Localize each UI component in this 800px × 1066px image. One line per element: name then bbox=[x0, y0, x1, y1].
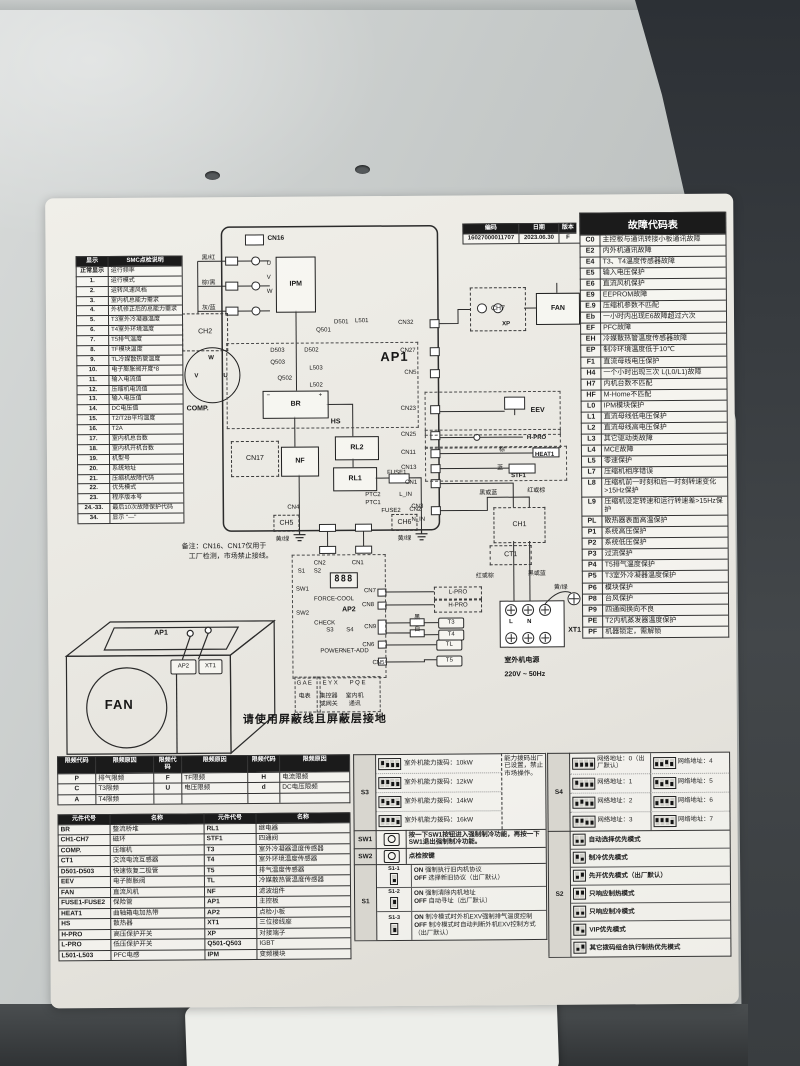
table-cell: 5. bbox=[76, 315, 108, 325]
table-cell: TL bbox=[204, 875, 256, 886]
cn23: CN23 bbox=[401, 406, 416, 412]
table-cell: COMP. bbox=[58, 845, 110, 856]
xt1-label: XT1 bbox=[568, 627, 581, 634]
table-cell bbox=[153, 793, 181, 804]
table-cell: 变频模块 bbox=[256, 948, 350, 959]
table-cell: 23. bbox=[77, 493, 109, 503]
table-cell: P4 bbox=[582, 560, 602, 571]
ptc2: PTC2 bbox=[365, 492, 380, 498]
rl2-box: RL2 bbox=[335, 436, 379, 460]
table-cell: 15. bbox=[77, 414, 109, 424]
priority-mode-text: 其它拨码组合执行制热优先模式 bbox=[589, 944, 680, 952]
netadd-tag: NET-ADD bbox=[342, 648, 368, 654]
eev-label: EEV bbox=[531, 407, 545, 414]
table-cell: 散热器 bbox=[110, 917, 204, 928]
table-cell: FUSE1-FUSE2 bbox=[58, 897, 110, 908]
ap2-cn6: CN6 bbox=[362, 642, 374, 648]
dip-switch-icon bbox=[573, 815, 596, 827]
iso-xt1: XT1 bbox=[198, 659, 222, 674]
table-cell: 内机台数不匹配 bbox=[600, 377, 726, 389]
dip-group-label: S3 bbox=[353, 754, 376, 830]
table-cell bbox=[181, 793, 247, 804]
ap2-cn9: CN9 bbox=[364, 624, 376, 630]
capacity-text: 室外机能力拨码：16kW bbox=[405, 817, 474, 825]
table-cell: H-PRO bbox=[58, 929, 110, 940]
table-cell: T4 bbox=[204, 854, 256, 865]
hs-label: HS bbox=[331, 418, 341, 425]
table-cell: IPM bbox=[204, 948, 256, 959]
nf-box: NF bbox=[281, 447, 319, 477]
gnd-label-1: 黄/绿 bbox=[276, 537, 290, 543]
dip-switch-table-left: S3室外机能力拨码：10kW室外机能力拨码：12kW室外机能力拨码：14kW室外… bbox=[353, 753, 547, 941]
net-address-cell: 网络地址：5 bbox=[650, 772, 730, 792]
fault-code-table: 故障代码表C0主控板与通讯转接小板通讯故障E2内外机通讯故障E4T3、T4温度传… bbox=[579, 212, 729, 639]
priority-mode-row: 只响应制热模式 bbox=[571, 883, 730, 902]
s1-switch-tag: S1-2 bbox=[388, 890, 400, 896]
priority-mode-row: 其它拨码组合执行制热优先模式 bbox=[571, 937, 730, 956]
sw1-description: 按一下SW1按钮进入强制制冷功能，再按一下SW1退出强制制冷功能。 bbox=[406, 829, 546, 848]
table-cell: E9 bbox=[580, 290, 600, 301]
table-cell: H7 bbox=[580, 378, 600, 389]
table-cell: HS bbox=[58, 918, 110, 929]
t3-pill: T3 bbox=[438, 617, 464, 628]
table-cell: P6 bbox=[582, 582, 602, 593]
table-cell: T2/T2B平均温度 bbox=[109, 414, 183, 424]
tl-pill: TL bbox=[436, 640, 462, 651]
table-cell: H bbox=[247, 772, 279, 783]
br-plus: + bbox=[319, 392, 323, 398]
table-cell: 21. bbox=[77, 474, 109, 484]
wire-blk-blue-bot: 黑或蓝 bbox=[528, 571, 546, 577]
capacity-text: 室外机能力拨码：10kW bbox=[404, 760, 473, 768]
dip-group-label: SW1 bbox=[354, 830, 376, 848]
cn25: CN25 bbox=[401, 432, 416, 438]
shield-note: 请使用屏蔽线且屏蔽层接地 bbox=[243, 714, 387, 727]
table-cell: 机型号 bbox=[109, 453, 183, 463]
table-row: PF机器锁定，需解锁 bbox=[582, 625, 728, 637]
priority-mode-text: VIP优先模式 bbox=[589, 926, 626, 933]
table-cell: Eb bbox=[580, 312, 600, 323]
table-cell: 压缩机故障代码 bbox=[109, 473, 183, 483]
ptc1: PTC1 bbox=[365, 500, 380, 506]
dip-switch-icon bbox=[573, 942, 586, 954]
dip-group-label: SW2 bbox=[354, 848, 376, 864]
table-cell: XP bbox=[204, 928, 256, 939]
table-cell: L4 bbox=[581, 444, 601, 455]
dip-switch-icon bbox=[573, 834, 586, 846]
table-cell: T3、T4温度传感器故障 bbox=[600, 256, 726, 268]
capacity-text: 室外机能力拨码：14kW bbox=[404, 798, 473, 806]
n-in: N_IN bbox=[411, 517, 425, 523]
table-cell: P3 bbox=[582, 549, 602, 560]
table-cell: 运行模式 bbox=[108, 275, 182, 285]
table-cell: 输入电压保护 bbox=[600, 267, 726, 279]
dip-switch-icon bbox=[378, 777, 401, 789]
table-cell: d bbox=[247, 782, 279, 793]
table-cell: 限频原因 bbox=[95, 756, 153, 773]
wiring-label: 编码日期版本160270000117072023.06.30F 故障代码表C0主… bbox=[45, 194, 739, 1009]
table-cell: E6 bbox=[580, 279, 600, 290]
table-cell: 7. bbox=[76, 335, 108, 345]
priority-mode-row: 制冷优先模式 bbox=[571, 847, 730, 866]
net-address-text: 网络地址：1 bbox=[597, 780, 632, 787]
comp-w: W bbox=[208, 355, 214, 361]
stf1-label: STF1 bbox=[511, 473, 526, 479]
push-button-icon bbox=[383, 833, 399, 846]
power-line2: 220V ~ 50Hz bbox=[504, 671, 545, 679]
wire-blk-blue-top: 黑或蓝 bbox=[479, 490, 497, 496]
table-cell: D501-D503 bbox=[58, 866, 110, 877]
table-cell: 压缩机电流值 bbox=[108, 384, 182, 394]
ap2-cn8: CN8 bbox=[362, 602, 374, 608]
table-cell: L2 bbox=[581, 422, 601, 433]
table-row: SW1按一下SW1按钮进入强制制冷功能，再按一下SW1退出强制制冷功能。 bbox=[354, 829, 546, 848]
s1-description: ON 强制清除内机地址OFF 自动寻址（出厂默认） bbox=[412, 887, 546, 910]
table-cell: BR bbox=[58, 824, 110, 835]
table-cell bbox=[279, 792, 349, 803]
table-cell: 1. bbox=[76, 276, 108, 286]
table-cell: 冷媒散热管温度传感器故障 bbox=[600, 333, 726, 345]
wire-brown: 棕 bbox=[499, 447, 505, 453]
table-cell: TL冷媒散热管温度 bbox=[108, 354, 182, 364]
table-cell: 8. bbox=[76, 345, 108, 355]
table-cell: 显示 "—" bbox=[109, 513, 183, 523]
table-cell: L3 bbox=[581, 433, 601, 444]
table-cell: P bbox=[57, 773, 95, 784]
table-cell: 滤波组件 bbox=[256, 885, 350, 896]
table-cell: H4 bbox=[580, 367, 600, 378]
cn27: CN27 bbox=[400, 348, 415, 354]
wire-red-brown-top: 红或棕 bbox=[527, 488, 545, 494]
table-cell: EH bbox=[580, 334, 600, 345]
dip-switch-icon bbox=[653, 815, 676, 827]
table-cell: 压缩机设定转速和运行转速差>15Hz保护 bbox=[601, 496, 727, 516]
table-cell: 19. bbox=[77, 454, 109, 464]
sw2-description: 点检按键 bbox=[406, 847, 546, 864]
table-cell: 主控板与通讯转接小板通讯故障 bbox=[599, 234, 725, 246]
table-row: S4网络地址：0（出厂默认）网络地址：1网络地址：2网络地址：3网络地址：4网络… bbox=[547, 752, 730, 831]
table-cell: 名称 bbox=[109, 813, 203, 824]
net-address-cell: 网络地址：2 bbox=[570, 792, 650, 812]
table-cell: 24.-33. bbox=[77, 503, 109, 513]
table-cell: PF bbox=[582, 626, 602, 637]
table-cell: T2内机蒸发器温度保护 bbox=[602, 614, 728, 626]
power-tag: POWER bbox=[320, 648, 343, 654]
table-cell: 34. bbox=[77, 513, 109, 523]
table-cell: 系统高压保护 bbox=[601, 526, 727, 538]
l501: L501 bbox=[355, 318, 368, 324]
table-cell: 程序版本号 bbox=[109, 493, 183, 503]
net-address-text: 网络地址：5 bbox=[678, 779, 713, 786]
table-cell: 散热器表面高温保护 bbox=[601, 515, 727, 527]
table-cell: T2A bbox=[109, 424, 183, 434]
table-cell: DC电压值 bbox=[109, 404, 183, 414]
force-cool: FORCE-COOL bbox=[314, 596, 354, 603]
ch7-box: CH7 bbox=[470, 287, 526, 331]
dip-group-label: S2 bbox=[548, 831, 571, 957]
table-cell: 4. bbox=[76, 305, 108, 315]
dip-switch-icon bbox=[573, 924, 586, 936]
table-cell: 内外机通讯故障 bbox=[600, 245, 726, 257]
priority-mode-row: 只响应制冷模式 bbox=[571, 901, 730, 920]
net-address-text: 网络地址：4 bbox=[678, 759, 713, 766]
note-line2: 工厂检测，市场禁止接线。 bbox=[189, 553, 273, 561]
table-cell: 四通阀换向不良 bbox=[602, 603, 728, 615]
ipm-w: W bbox=[267, 289, 273, 295]
display-check-table: 显示SMC点检说明正常显示运行频率1.运行模式2.运转风速风档3.室内机总能力需… bbox=[76, 255, 185, 524]
table-cell: EF bbox=[580, 323, 600, 334]
table-cell: 一小时内出现E6故障超过六次 bbox=[600, 311, 726, 323]
table-cell: T3室外冷凝器温度保护 bbox=[602, 570, 728, 582]
sw2-label: SW2 bbox=[296, 611, 309, 617]
net-address-text: 网络地址：2 bbox=[597, 799, 632, 806]
comm-region bbox=[317, 676, 381, 712]
table-cell: 磁环 bbox=[110, 834, 204, 845]
table-cell: 最后10次故障保护代码 bbox=[109, 503, 183, 513]
table-cell: HEAT1 bbox=[58, 908, 110, 919]
table-cell: 电子膨胀阀开度*8 bbox=[108, 364, 182, 374]
sw1-label: SW1 bbox=[296, 587, 309, 593]
table-cell: A bbox=[57, 794, 95, 805]
table-cell: STF1 bbox=[204, 833, 256, 844]
dip-switch-icon bbox=[572, 796, 595, 808]
table-cell: 优先模式 bbox=[109, 483, 183, 493]
seg-display: 888 bbox=[330, 572, 358, 588]
table-cell: L0 bbox=[581, 400, 601, 411]
capacity-row: 室外机能力拨码：10kW bbox=[376, 754, 501, 773]
dip-switch-icon bbox=[573, 906, 586, 918]
table-cell: 2. bbox=[76, 286, 108, 296]
ap2-cn1: CN1 bbox=[352, 560, 364, 566]
table-row: 160270000117072023.06.30F bbox=[462, 233, 579, 244]
table-cell bbox=[247, 793, 279, 804]
table-row: L501-L503PFC电感IPM变频模块 bbox=[58, 948, 350, 961]
table-cell: 输入电压值 bbox=[109, 394, 183, 404]
table-cell: 室内机开机台数 bbox=[109, 443, 183, 453]
table-cell: T4室外环境温度 bbox=[108, 325, 182, 335]
table-cell: IGBT bbox=[256, 937, 350, 948]
table-cell: 交流电流互感器 bbox=[110, 855, 204, 866]
dip-group-label: S4 bbox=[547, 753, 570, 831]
table-cell: 10. bbox=[76, 365, 108, 375]
cn2: CN2 bbox=[409, 507, 421, 513]
s1-row: S1-3ON 制冷模式时外机EXV强制排气温度控制OFF 制冷模式时自动判断外机… bbox=[377, 910, 546, 940]
ap2-cn5: CN5 bbox=[372, 660, 384, 666]
cn1: CN1 bbox=[405, 480, 417, 486]
table-cell: T5 bbox=[204, 865, 256, 876]
table-cell: 压缩机前一时刻和后一时刻转速变化>15Hz保护 bbox=[601, 477, 727, 497]
net-address-text: 网络地址：3 bbox=[598, 818, 633, 825]
priority-mode-text: 先开优先模式（出厂默认） bbox=[589, 872, 667, 880]
table-cell: 限频代码 bbox=[247, 755, 279, 772]
dip-switch-icon bbox=[653, 777, 676, 789]
table-cell: 版本 bbox=[558, 223, 576, 233]
q501: Q501 bbox=[316, 327, 331, 333]
xp-label: XP bbox=[502, 321, 510, 327]
table-cell: T3限频 bbox=[95, 783, 153, 794]
meta-table: 编码日期版本160270000117072023.06.30F bbox=[462, 223, 580, 245]
table-cell: XT1 bbox=[204, 917, 256, 928]
table-cell: TF限频 bbox=[181, 772, 247, 783]
screw-left bbox=[205, 171, 220, 180]
table-cell: 元件代号 bbox=[57, 814, 109, 824]
t5-pill: T5 bbox=[436, 656, 462, 667]
table-cell: 排气温度传感器 bbox=[256, 864, 350, 875]
priority-mode-text: 只响应制冷模式 bbox=[589, 908, 635, 915]
net-address-cell: 网络地址：7 bbox=[650, 810, 730, 830]
table-cell: F bbox=[558, 233, 576, 243]
cn13: CN13 bbox=[401, 465, 416, 471]
table-cell: 3. bbox=[76, 296, 108, 306]
dip-switch-icon bbox=[390, 873, 398, 885]
table-cell: PFC电感 bbox=[110, 949, 204, 960]
table-cell: 高压保护开关 bbox=[110, 928, 204, 939]
table-cell: 22. bbox=[77, 483, 109, 493]
l-in: L_IN bbox=[399, 492, 412, 498]
s1-switch-tag: S1-3 bbox=[388, 916, 400, 922]
ct1-box: CT1 bbox=[490, 545, 532, 565]
table-cell: P2 bbox=[582, 538, 602, 549]
dip-group-label: S1 bbox=[354, 864, 377, 940]
hpro2-box: H-PRO bbox=[434, 599, 482, 612]
table-cell: T5排气温度保护 bbox=[602, 559, 728, 571]
table-cell: 输入电流值 bbox=[108, 374, 182, 384]
table-cell: 20. bbox=[77, 464, 109, 474]
table-cell: 室外冷凝器温度传感器 bbox=[256, 843, 350, 854]
dip-switch-icon bbox=[390, 923, 398, 935]
table-row: AT4限频 bbox=[57, 792, 349, 805]
table-cell: HF bbox=[581, 389, 601, 400]
table-cell: 限频原因 bbox=[181, 755, 247, 772]
priority-mode-row: 自动选择优先模式 bbox=[571, 830, 730, 848]
table-cell: 过流保护 bbox=[602, 548, 728, 560]
table-cell: 17. bbox=[77, 434, 109, 444]
table-cell: T4限频 bbox=[95, 793, 153, 804]
table-cell: 名称 bbox=[255, 812, 349, 823]
table-cell: 低压保护开关 bbox=[110, 938, 204, 949]
table-cell: 快速恢复二极管 bbox=[110, 865, 204, 876]
table-cell: EP bbox=[580, 345, 600, 356]
table-cell: 室内机总能力需求 bbox=[108, 295, 182, 305]
ap2-s4: S4 bbox=[346, 627, 353, 633]
table-row: S3室外机能力拨码：10kW室外机能力拨码：12kW室外机能力拨码：14kW室外… bbox=[353, 753, 546, 830]
net-address-cell: 网络地址：3 bbox=[570, 811, 650, 831]
table-cell: 直流母线高电压保护 bbox=[601, 421, 727, 433]
table-cell: 室外环境温度传感器 bbox=[256, 854, 350, 865]
table-cell: U bbox=[153, 783, 181, 794]
check-label: CHECK bbox=[314, 620, 335, 626]
ap2-label: AP2 bbox=[342, 606, 356, 613]
iso-ap2: AP2 bbox=[170, 659, 196, 674]
table-cell: T3室外冷凝器温度 bbox=[108, 315, 182, 325]
table-cell: E2 bbox=[580, 246, 600, 257]
dip-switch-icon bbox=[390, 897, 398, 909]
table-row: S1S1-1ON 强制执行旧内机协议OFF 选择新旧协议（出厂默认）S1-2ON… bbox=[354, 863, 547, 940]
net-address-cell: 网络地址：4 bbox=[650, 753, 730, 773]
table-cell: 保险管 bbox=[110, 896, 204, 907]
table-cell: CT1 bbox=[58, 855, 110, 866]
table-cell: 6. bbox=[76, 325, 108, 335]
iso-ap1: AP1 bbox=[154, 630, 168, 637]
table-cell: 显示 bbox=[76, 256, 108, 266]
table-cell: T5排气温度 bbox=[108, 335, 182, 345]
net-address-cell: 网络地址：1 bbox=[570, 773, 650, 793]
capacity-text: 室外机能力拨码：12kW bbox=[404, 779, 473, 787]
table-row: S2自动选择优先模式制冷优先模式先开优先模式（出厂默认）只响应制热模式只响应制冷… bbox=[548, 829, 731, 956]
table-cell: M-Home不匹配 bbox=[601, 388, 727, 400]
table-cell: L501-L503 bbox=[58, 949, 110, 960]
capacity-row: 室外机能力拨码：16kW bbox=[376, 810, 501, 830]
s1-description: ON 制冷模式时外机EXV强制排气温度控制OFF 制冷模式时自动判断外机EXV控… bbox=[412, 911, 546, 940]
dip-switch-icon bbox=[378, 815, 401, 827]
priority-mode-text: 自动选择优先模式 bbox=[589, 836, 641, 844]
dip-switch-icon bbox=[378, 796, 401, 808]
table-cell: 一个小时出现三次 L(L0/L1)故障 bbox=[600, 366, 726, 378]
xt1-n: N bbox=[527, 619, 531, 625]
push-button-icon bbox=[383, 850, 399, 863]
iso-fan: FAN bbox=[105, 698, 134, 712]
rl1-box: RL1 bbox=[333, 467, 377, 491]
wire-brown-black: 棕/黑 bbox=[202, 280, 216, 286]
dip-switch-icon bbox=[573, 852, 586, 864]
table-cell: 对接端子 bbox=[256, 927, 350, 938]
table-cell: 直流母线电压保护 bbox=[600, 355, 726, 367]
table-cell: 机器锁定，需解锁 bbox=[602, 625, 728, 637]
table-cell: 零速保护 bbox=[601, 455, 727, 467]
table-cell: 16027000011707 bbox=[462, 233, 518, 243]
priority-mode-row: VIP优先模式 bbox=[571, 919, 730, 938]
dip-switch-icon bbox=[573, 870, 586, 882]
note-line1: 备注：CN16、CN17仅用于 bbox=[182, 543, 267, 551]
priority-mode-text: 制冷优先模式 bbox=[589, 854, 628, 861]
table-cell: 直流风机保护 bbox=[600, 278, 726, 290]
table-cell: P1 bbox=[581, 527, 601, 538]
table-cell: 运行频率 bbox=[108, 265, 182, 275]
table-cell: 台风保护 bbox=[602, 592, 728, 604]
table-cell: 系统地址 bbox=[109, 463, 183, 473]
hpro-label: H-PRO bbox=[527, 435, 546, 441]
table-cell: L8 bbox=[581, 478, 601, 497]
table-cell: E.9 bbox=[580, 301, 600, 312]
xt1-l: L bbox=[509, 619, 513, 625]
table-cell: 编码 bbox=[462, 223, 518, 233]
table-cell: 12. bbox=[76, 385, 108, 395]
net-address-text: 网络地址：0（出厂默认） bbox=[597, 756, 648, 770]
table-cell: F1 bbox=[580, 356, 600, 367]
table-cell: E4 bbox=[580, 257, 600, 268]
wire-blue: 蓝 bbox=[497, 465, 503, 471]
br-minus: − bbox=[267, 393, 271, 399]
ipm-u: U bbox=[267, 261, 271, 267]
ipm-v: V bbox=[267, 275, 271, 281]
table-cell: 排气限频 bbox=[95, 772, 153, 783]
net-address-cell: 网络地址：6 bbox=[650, 791, 730, 811]
table-cell: PFC故障 bbox=[600, 322, 726, 334]
table-cell: FAN bbox=[58, 887, 110, 898]
table-cell: 曲轴箱电加热带 bbox=[110, 907, 204, 918]
table-cell: L7 bbox=[581, 467, 601, 478]
table-cell: 限频代码 bbox=[57, 756, 95, 773]
panel-top-edge bbox=[0, 0, 660, 10]
net-address-text: 网络地址：7 bbox=[678, 817, 713, 824]
dip-switch-icon bbox=[573, 888, 586, 900]
table-cell: 运转风速风档 bbox=[108, 285, 182, 295]
table-cell: 限频代码 bbox=[153, 755, 181, 772]
table-cell: IPM模块保护 bbox=[601, 399, 727, 411]
s1-description: ON 强制执行旧内机协议OFF 选择新旧协议（出厂默认） bbox=[412, 864, 546, 887]
table-cell: 日期 bbox=[518, 223, 558, 233]
power-line1: 室外机电源 bbox=[504, 657, 539, 665]
